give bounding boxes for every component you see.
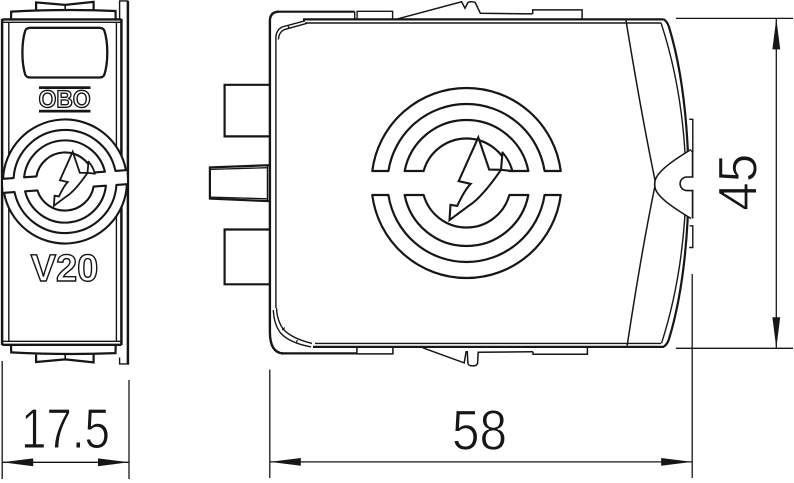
svg-text:58: 58 [452, 398, 507, 461]
svg-text:45: 45 [706, 154, 768, 211]
svg-text:17.5: 17.5 [21, 397, 110, 460]
